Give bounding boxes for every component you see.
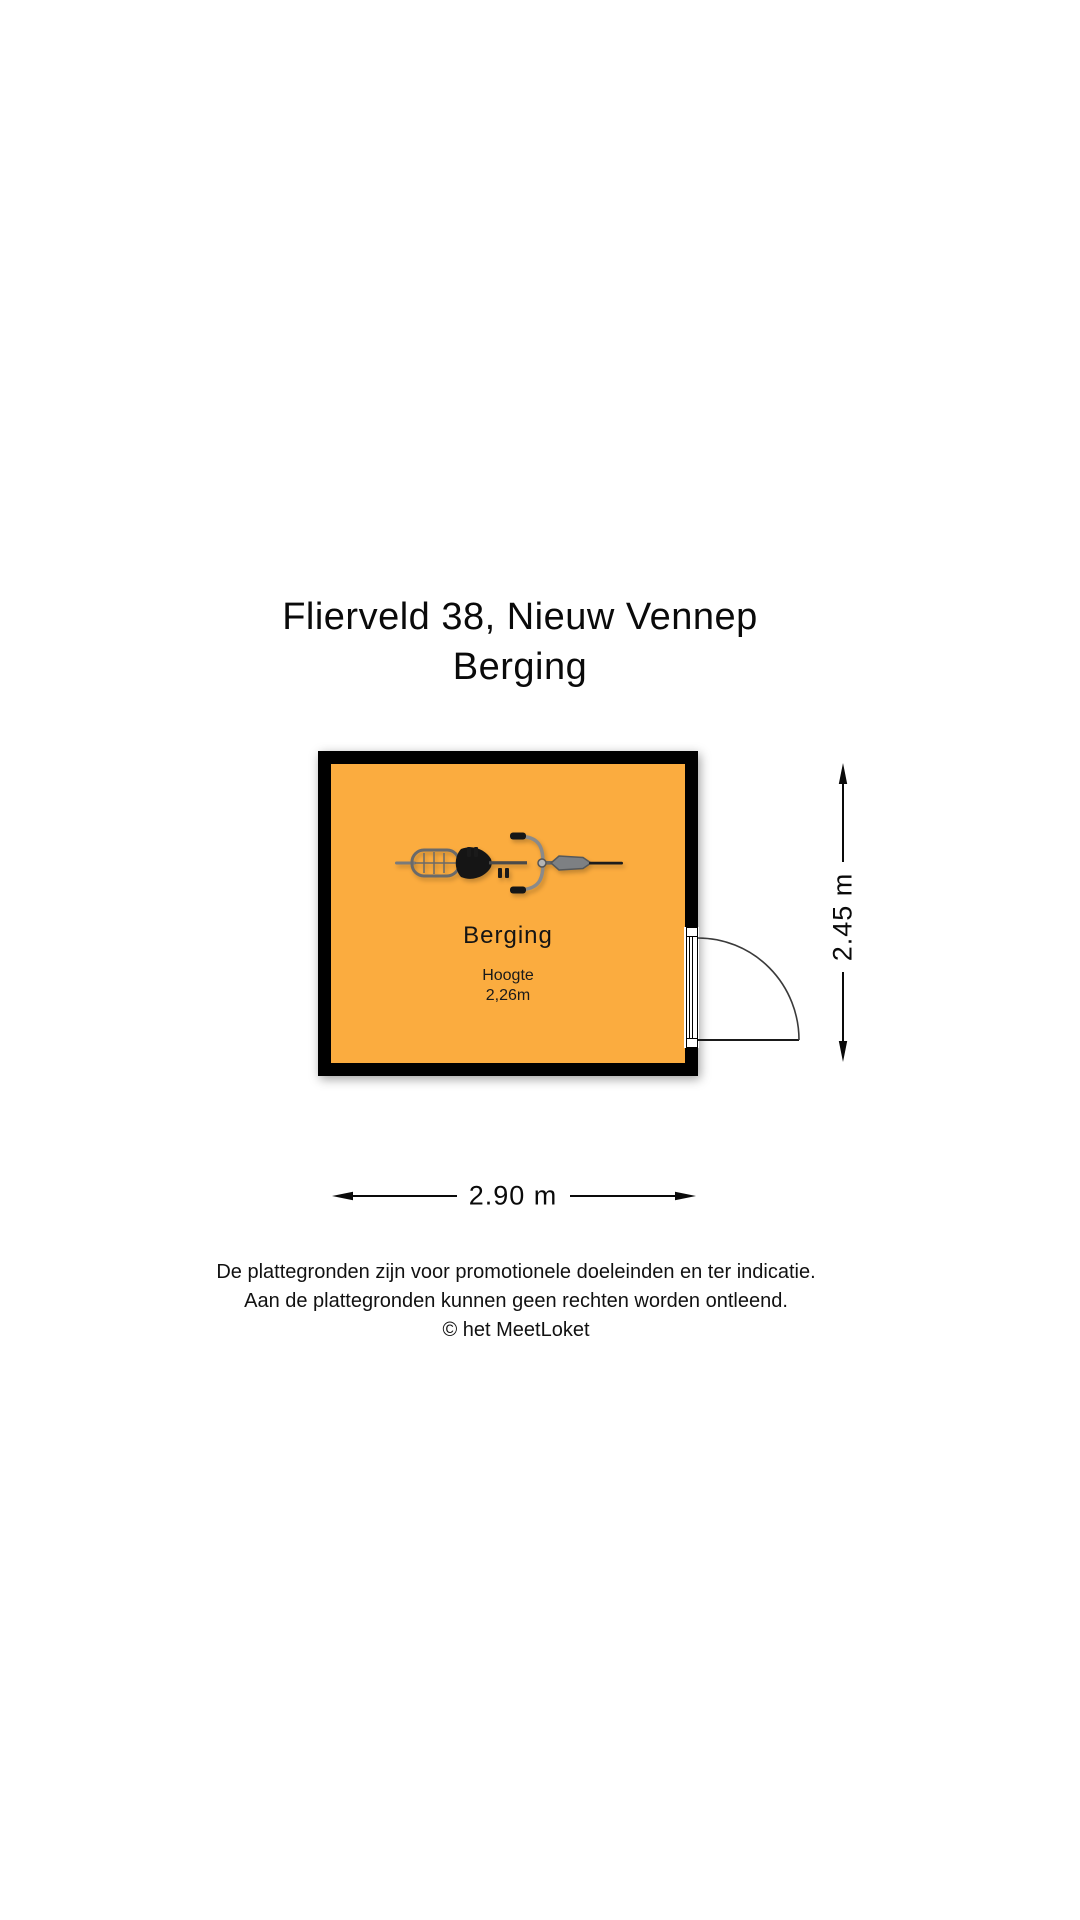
door-jamb (686, 927, 698, 1048)
room-floor (331, 764, 685, 1063)
bicycle-front-wheel (589, 862, 623, 865)
room-height-block: Hoogte 2,26m (331, 966, 685, 1006)
disclaimer: De plattegronden zijn voor promotionele … (0, 1258, 1032, 1345)
room-wall (318, 751, 698, 1076)
disclaimer-line-1: De plattegronden zijn voor promotionele … (0, 1258, 1032, 1287)
door-jamb-lines (689, 937, 695, 1038)
height-dim-arrow-down-icon (839, 1041, 847, 1062)
bicycle-headset (538, 859, 546, 867)
width-dimension-label: 2.90 m (469, 1181, 558, 1212)
title-room-type: Berging (0, 642, 1040, 692)
title-address: Flierveld 38, Nieuw Vennep (0, 592, 1040, 642)
width-dim-arrow-left-icon (332, 1192, 353, 1200)
bicycle-rack (412, 850, 459, 876)
page-title: Flierveld 38, Nieuw Vennep Berging (0, 592, 1040, 692)
width-dim-arrow-right-icon (675, 1192, 696, 1200)
room-name-label: Berging (331, 921, 685, 951)
bicycle-frame (489, 861, 527, 864)
height-dimension-label: 2.45 m (828, 873, 859, 962)
bicycle-front-fork (551, 856, 591, 870)
bicycle-icon (393, 830, 625, 896)
disclaimer-line-3: © het MeetLoket (0, 1316, 1032, 1345)
door-swing-arc (698, 938, 799, 1040)
disclaimer-line-2: Aan de plattegronden kunnen geen rechten… (0, 1287, 1032, 1316)
door-jamb-cap-bottom (687, 1038, 697, 1039)
room-height-label: Hoogte (331, 966, 685, 986)
room-height-value: 2,26m (331, 986, 685, 1006)
bicycle-saddle (456, 847, 492, 879)
height-dim-arrow-up-icon (839, 763, 847, 784)
floorplan-page: { "title": { "address": "Flierveld 38, N… (0, 0, 1080, 1920)
